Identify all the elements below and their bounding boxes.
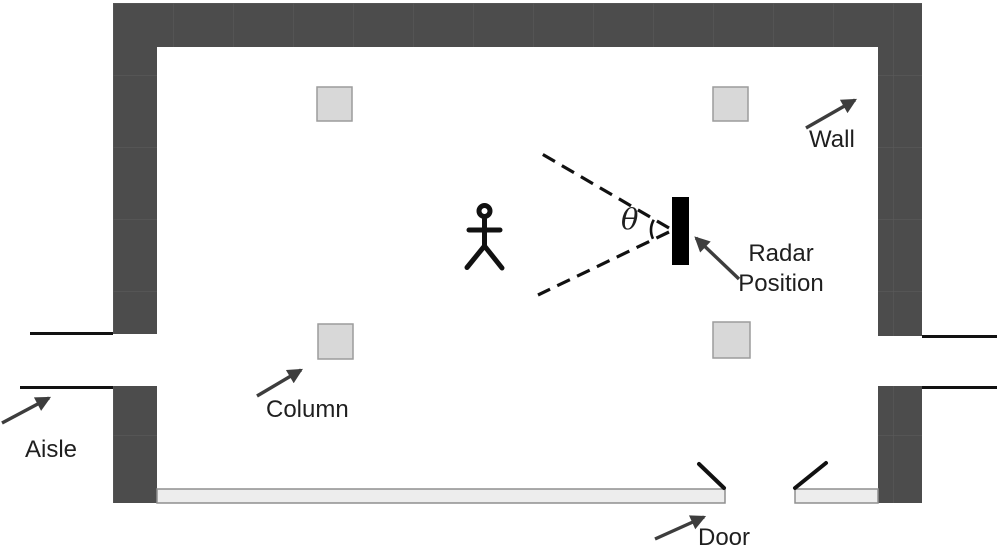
- column-top-left: [317, 87, 352, 121]
- wall-right-lower: [878, 386, 922, 503]
- aisle-arrow: [2, 398, 49, 423]
- person-left-leg: [467, 246, 485, 268]
- column-top-right: [713, 87, 748, 121]
- door-arrow: [655, 517, 704, 539]
- column-label: Column: [266, 396, 349, 424]
- column-bottom-left: [318, 324, 353, 359]
- beam-upper-dashed-line: [542, 154, 669, 228]
- column-arrow: [257, 370, 301, 396]
- radar: [672, 197, 689, 265]
- person-figure: [467, 206, 502, 269]
- aisle-walls: [20, 334, 997, 388]
- wall-arrow: [806, 100, 855, 128]
- room-diagram: [0, 0, 1000, 549]
- door-label: Door: [698, 524, 750, 549]
- door-leaves: [699, 463, 826, 488]
- front-wall-left-segment: [157, 489, 725, 503]
- aisle-label: Aisle: [25, 436, 77, 464]
- wall-left-upper: [113, 47, 157, 334]
- wall-left-lower: [113, 386, 157, 503]
- room-layout-figure: Wall Radar Position Column Aisle Door θ: [0, 0, 1000, 549]
- person-head: [479, 206, 490, 217]
- theta-label: θ: [621, 203, 638, 236]
- radar-beam: [538, 154, 669, 295]
- front-wall: [157, 489, 878, 503]
- wall-label: Wall: [809, 126, 855, 154]
- wall-right-upper: [878, 47, 922, 336]
- door-leaf-right: [795, 463, 826, 488]
- person-right-leg: [485, 246, 503, 268]
- door-leaf-left: [699, 464, 724, 488]
- wall-top: [113, 3, 922, 47]
- front-wall-right-segment: [795, 489, 878, 503]
- beam-angle-arc: [651, 220, 654, 239]
- column-bottom-right: [713, 322, 750, 358]
- beam-lower-dashed-line: [538, 232, 669, 295]
- radar-position-label: Radar Position: [729, 239, 833, 299]
